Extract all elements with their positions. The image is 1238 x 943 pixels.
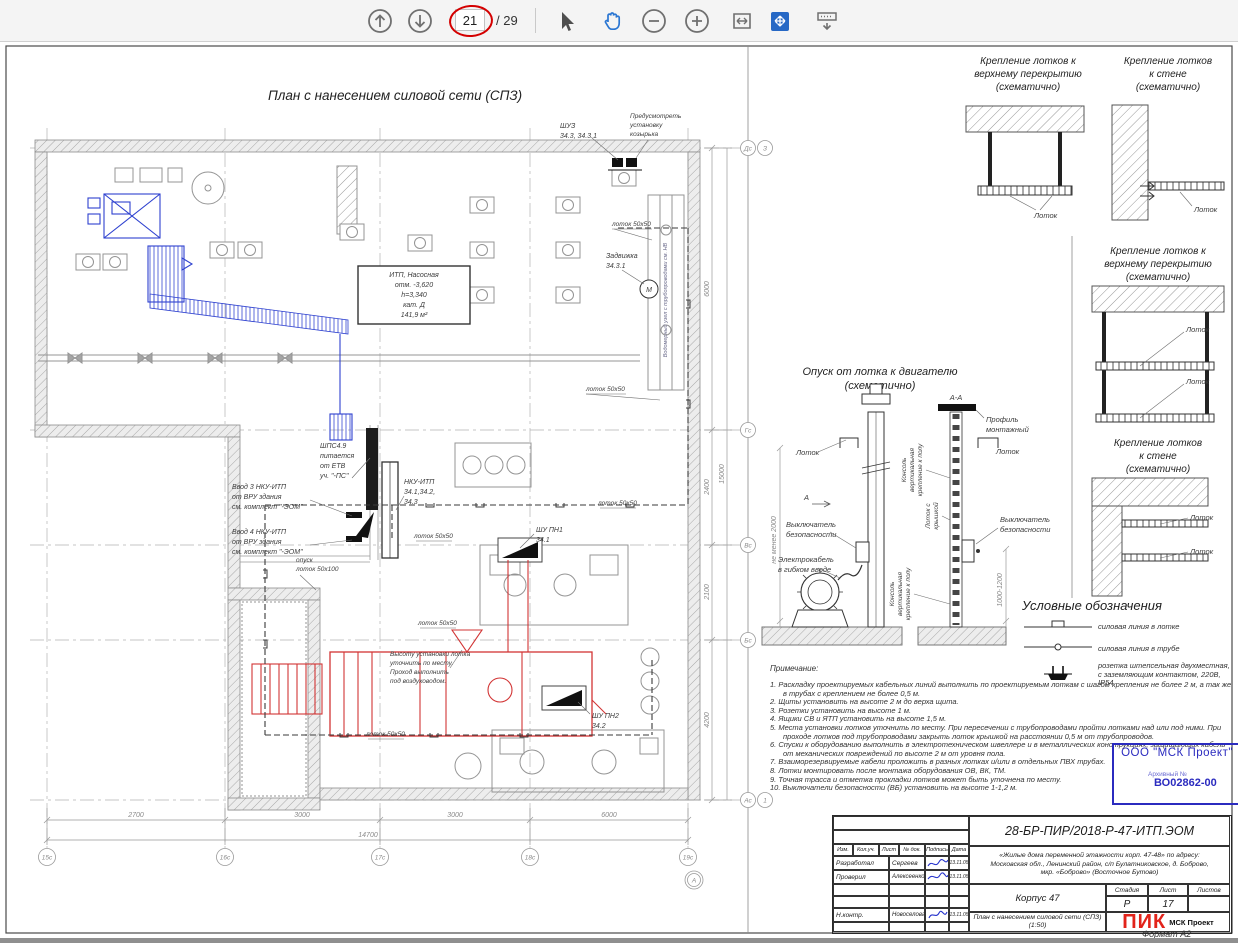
svg-text:Лоток: Лоток <box>1033 211 1058 220</box>
svg-text:кат. Д: кат. Д <box>403 302 425 309</box>
name-developed: Сергеев <box>889 856 925 870</box>
date-checked: 13.11.05 <box>949 870 969 884</box>
page-number-box <box>455 9 485 31</box>
svg-text:18с: 18с <box>525 855 536 862</box>
col-data: Дата <box>949 844 969 856</box>
svg-text:верхнему перекрытию: верхнему перекрытию <box>1104 259 1212 270</box>
svg-text:Лоток: Лоток <box>1185 377 1210 386</box>
svg-text:в гибком вводе: в гибком вводе <box>778 565 831 574</box>
pdf-viewer-window: / 29 <box>0 0 1238 943</box>
plan-title: План с нанесением силовой сети (СПЗ) <box>268 88 522 103</box>
label-zadvizhka: Задвижка <box>606 252 638 260</box>
label-shu-pn1: ШУ ПН1 <box>536 527 563 534</box>
col-podpis: Подпись <box>925 844 949 856</box>
label-kozyrek: Предусмотреть <box>630 112 682 120</box>
svg-text:3000: 3000 <box>447 812 463 819</box>
svg-text:34.1,34.2,: 34.1,34.2, <box>404 489 435 496</box>
svg-text:141,9 м²: 141,9 м² <box>401 312 428 319</box>
col-izm: Изм. <box>833 844 853 856</box>
svg-text:от ЕТВ: от ЕТВ <box>320 463 346 470</box>
msk-proekt-logo: МСК Проект <box>1169 918 1213 927</box>
svg-text:h=3,340: h=3,340 <box>401 292 427 299</box>
svg-text:34.3.1: 34.3.1 <box>606 263 626 270</box>
svg-text:безопасности: безопасности <box>1000 525 1051 534</box>
document-code: 28-БР-ПИР/2018-Р-47-ИТП.ЭОМ <box>969 816 1230 846</box>
svg-text:15с: 15с <box>42 855 53 862</box>
svg-text:от ВРУ здания: от ВРУ здания <box>232 538 282 546</box>
itp-room-box: ИТП, Насосная отм. -3,620 h=3,340 кат. Д… <box>358 266 470 324</box>
svg-text:Лоток: Лоток <box>795 448 820 457</box>
svg-text:А: А <box>803 493 809 502</box>
hand-icon <box>598 8 624 34</box>
sheet-header: Лист <box>1148 884 1188 896</box>
zoom-out-button[interactable] <box>640 7 668 35</box>
company-logo: ПИК МСК Проект <box>1106 912 1230 932</box>
legend-item-tray: силовая линия в лотке <box>1022 618 1235 637</box>
label-vvod4: Ввод 4 НКУ-ИТП <box>232 528 287 536</box>
svg-text:19с: 19с <box>683 855 694 862</box>
svg-text:(схематично): (схематично) <box>1126 272 1190 283</box>
svg-text:верхнему перекрытию: верхнему перекрытию <box>974 69 1082 80</box>
project-description: «Жилые дома переменной этажности корп. 4… <box>969 846 1230 884</box>
svg-text:Дс: Дс <box>743 146 753 153</box>
svg-text:вертикальная: вертикальная <box>909 448 916 492</box>
viewer-toolbar: / 29 <box>0 0 1238 42</box>
svg-text:питается: питается <box>320 453 354 460</box>
svg-text:17с: 17с <box>375 855 386 862</box>
svg-text:Электрокабель: Электрокабель <box>778 555 834 564</box>
svg-text:(схематично): (схематично) <box>1126 464 1190 475</box>
sheets-header: Листов <box>1188 884 1230 896</box>
col-koluch: Кол.уч. <box>853 844 879 856</box>
title-block: Изм. Кол.уч. Лист № док. Подпись Дата Ра… <box>832 815 1232 934</box>
svg-text:Лоток: Лоток <box>1193 205 1218 214</box>
svg-text:лоток 50х50: лоток 50х50 <box>365 731 405 738</box>
svg-text:2700: 2700 <box>127 812 144 819</box>
svg-text:крепление к полу: крепление к полу <box>917 443 924 496</box>
col-list: Лист <box>879 844 899 856</box>
stamp-company: ООО "МСК Проект" <box>1114 747 1238 759</box>
cursor-arrow-icon <box>553 8 579 34</box>
svg-text:2400: 2400 <box>704 479 711 496</box>
toolbar-dropdown-icon <box>814 8 840 34</box>
svg-text:3000: 3000 <box>294 812 310 819</box>
date-developed: 13.11.05 <box>949 856 969 870</box>
label-nku: НКУ-ИТП <box>404 479 435 486</box>
svg-text:лоток 50х50: лоток 50х50 <box>413 533 453 540</box>
sheets-total <box>1188 896 1230 912</box>
svg-text:16с: 16с <box>220 855 231 862</box>
label-motor: М <box>646 287 652 294</box>
svg-text:монтажный: монтажный <box>986 425 1030 434</box>
signature-developed <box>925 856 949 870</box>
svg-text:6000: 6000 <box>601 812 617 819</box>
svg-text:уч. "-ПС": уч. "-ПС" <box>319 473 349 480</box>
svg-text:Крепление лотков: Крепление лотков <box>1114 438 1202 449</box>
label-shuz: ШУЗ <box>560 123 576 130</box>
svg-text:Выключатель: Выключатель <box>1000 515 1050 524</box>
svg-text:34.1: 34.1 <box>536 537 550 544</box>
stage-header: Стадия <box>1106 884 1148 896</box>
toolbar-divider <box>535 8 536 33</box>
power-line-tray-symbol <box>1022 618 1098 637</box>
svg-text:Проход выполнить: Проход выполнить <box>390 668 449 676</box>
stage-value: Р <box>1106 896 1148 912</box>
role-developed: Разработал <box>833 856 889 870</box>
svg-text:под воздуховодом.: под воздуховодом. <box>390 677 446 685</box>
signature-icon <box>926 909 948 921</box>
arrow-down-circle-icon <box>407 8 433 34</box>
svg-text:Лоток: Лоток <box>1189 547 1214 556</box>
label-shu-pn2: ШУ ПН2 <box>592 713 619 720</box>
arrow-up-circle-icon <box>367 8 393 34</box>
drawing-canvas: ШУЗ 34.3, 34.3.1 Предусмотреть установку… <box>0 0 1238 943</box>
svg-text:см. комплект "-ЭОМ": см. комплект "-ЭОМ" <box>232 549 303 556</box>
svg-text:Гс: Гс <box>745 428 753 435</box>
svg-text:34.3, 34.3.1: 34.3, 34.3.1 <box>560 133 597 140</box>
note-item: 1. Раскладку проектируемых кабельных лин… <box>770 681 1234 698</box>
legend-title: Условные обозначения <box>1022 598 1235 613</box>
zoom-in-button[interactable] <box>683 7 711 35</box>
svg-text:лоток 50х100: лоток 50х100 <box>295 566 339 573</box>
svg-text:Крепление лотков к: Крепление лотков к <box>1110 246 1207 257</box>
name-checked: Алексеенко <box>889 870 925 884</box>
svg-text:ИТП, Насосная: ИТП, Насосная <box>389 272 439 279</box>
svg-text:лоток 50х50: лоток 50х50 <box>417 620 457 627</box>
svg-text:Вс: Вс <box>744 543 752 550</box>
svg-text:крышкой: крышкой <box>932 502 940 530</box>
sheet-number: 17 <box>1148 896 1188 912</box>
signature-icon <box>926 871 948 883</box>
stamp-archive-number: ВО02862-00 <box>1154 777 1217 789</box>
fit-width-icon <box>729 8 755 34</box>
svg-text:Профиль: Профиль <box>986 415 1018 424</box>
svg-text:Лоток: Лоток <box>995 447 1020 456</box>
svg-text:Лоток: Лоток <box>1185 325 1210 334</box>
fit-page-icon <box>767 8 793 34</box>
bottom-scrollbar[interactable] <box>0 938 1238 943</box>
page-number-input[interactable] <box>455 9 485 31</box>
svg-text:Выключатель: Выключатель <box>786 520 836 529</box>
svg-text:1000-1200: 1000-1200 <box>997 573 1004 607</box>
svg-text:А: А <box>691 878 696 885</box>
archive-stamp: ООО "МСК Проект" Архивный № ВО02862-00 <box>1112 743 1238 805</box>
role-ncontrol: Н.контр. <box>833 908 889 922</box>
svg-text:Крепление лотков к: Крепление лотков к <box>980 56 1077 67</box>
svg-text:см. комплект "-ЭОМ": см. комплект "-ЭОМ" <box>232 504 303 511</box>
svg-text:Опуск от лотка к двигателю: Опуск от лотка к двигателю <box>802 366 957 378</box>
svg-text:отм. -3,620: отм. -3,620 <box>395 282 433 289</box>
svg-text:Консоль: Консоль <box>901 457 908 482</box>
pik-logo: ПИК <box>1122 913 1166 931</box>
role-checked: Проверил <box>833 870 889 884</box>
svg-text:(схематично): (схематично) <box>996 82 1060 93</box>
next-page-button[interactable] <box>406 7 434 35</box>
fit-width-button[interactable] <box>728 7 756 35</box>
svg-text:козырька: козырька <box>630 131 659 138</box>
previous-page-button[interactable] <box>366 7 394 35</box>
minus-circle-icon <box>641 8 667 34</box>
svg-text:не менее 2000: не менее 2000 <box>771 516 778 564</box>
svg-text:Лоток с: Лоток с <box>925 503 932 530</box>
col-dok: № док. <box>899 844 925 856</box>
svg-text:Крепление лотков: Крепление лотков <box>1124 56 1212 67</box>
svg-text:(схематично): (схематично) <box>1136 82 1200 93</box>
svg-text:З: З <box>763 146 767 153</box>
plus-circle-icon <box>684 8 710 34</box>
select-tool-button[interactable] <box>552 7 580 35</box>
svg-text:Ас: Ас <box>743 798 752 805</box>
label-vvod3: Ввод 3 НКУ-ИТП <box>232 483 287 491</box>
label-shps: ШПС4.9 <box>320 443 346 450</box>
date-ncontrol: 13.11.05 <box>949 908 969 922</box>
page-count-label: / 29 <box>496 13 518 28</box>
svg-text:2100: 2100 <box>704 584 711 601</box>
svg-text:1: 1 <box>763 798 767 805</box>
svg-text:установку: установку <box>629 122 663 129</box>
svg-text:4200: 4200 <box>704 712 711 728</box>
signature-checked <box>925 870 949 884</box>
object-name: Корпус 47 <box>969 884 1106 912</box>
toolbar-options-button[interactable] <box>813 7 841 35</box>
svg-text:6000: 6000 <box>704 281 711 297</box>
label-wall-note: Водомерный узел с трубопроводами см. НВ <box>662 242 669 357</box>
note-item: 5. Места установки лотков уточнить по ме… <box>770 724 1234 741</box>
drawing-name: План с нанесением силовой сети (СПЗ) (1:… <box>969 912 1106 932</box>
name-ncontrol: Новоселова <box>889 908 925 922</box>
svg-text:34.2: 34.2 <box>592 723 606 730</box>
svg-text:к стене: к стене <box>1139 451 1177 462</box>
label-vysota-note: Высоту установки лотка <box>390 651 471 658</box>
power-line-pipe-symbol <box>1022 640 1098 659</box>
label-opusk-lotok: опуск <box>296 557 314 564</box>
svg-text:к стене: к стене <box>1149 69 1187 80</box>
svg-text:14700: 14700 <box>358 832 378 839</box>
signature-icon <box>926 857 948 869</box>
svg-text:34.3: 34.3 <box>404 499 418 506</box>
svg-text:лоток 50х50: лоток 50х50 <box>597 500 637 507</box>
svg-text:Консоль: Консоль <box>889 581 896 606</box>
svg-text:лоток 50х50: лоток 50х50 <box>585 386 625 393</box>
signature-ncontrol <box>925 908 949 922</box>
label-lotok-50x50: лоток 50х50 <box>611 221 651 228</box>
notes-heading: Примечание: <box>770 664 1234 673</box>
fit-page-button[interactable] <box>766 7 794 35</box>
svg-text:Бс: Бс <box>744 638 752 645</box>
svg-text:Лоток: Лоток <box>1189 513 1214 522</box>
legend-item-pipe: силовая линия в трубе <box>1022 640 1235 659</box>
svg-text:безопасности: безопасности <box>786 530 837 539</box>
svg-text:вертикальная: вертикальная <box>897 572 904 616</box>
svg-text:А-А: А-А <box>949 393 963 402</box>
hand-tool-button[interactable] <box>597 7 625 35</box>
svg-text:уточнить по месту.: уточнить по месту. <box>389 660 453 667</box>
svg-text:от ВРУ здания: от ВРУ здания <box>232 493 282 501</box>
svg-text:15000: 15000 <box>719 464 726 484</box>
svg-text:крепление к полу: крепление к полу <box>905 567 912 620</box>
